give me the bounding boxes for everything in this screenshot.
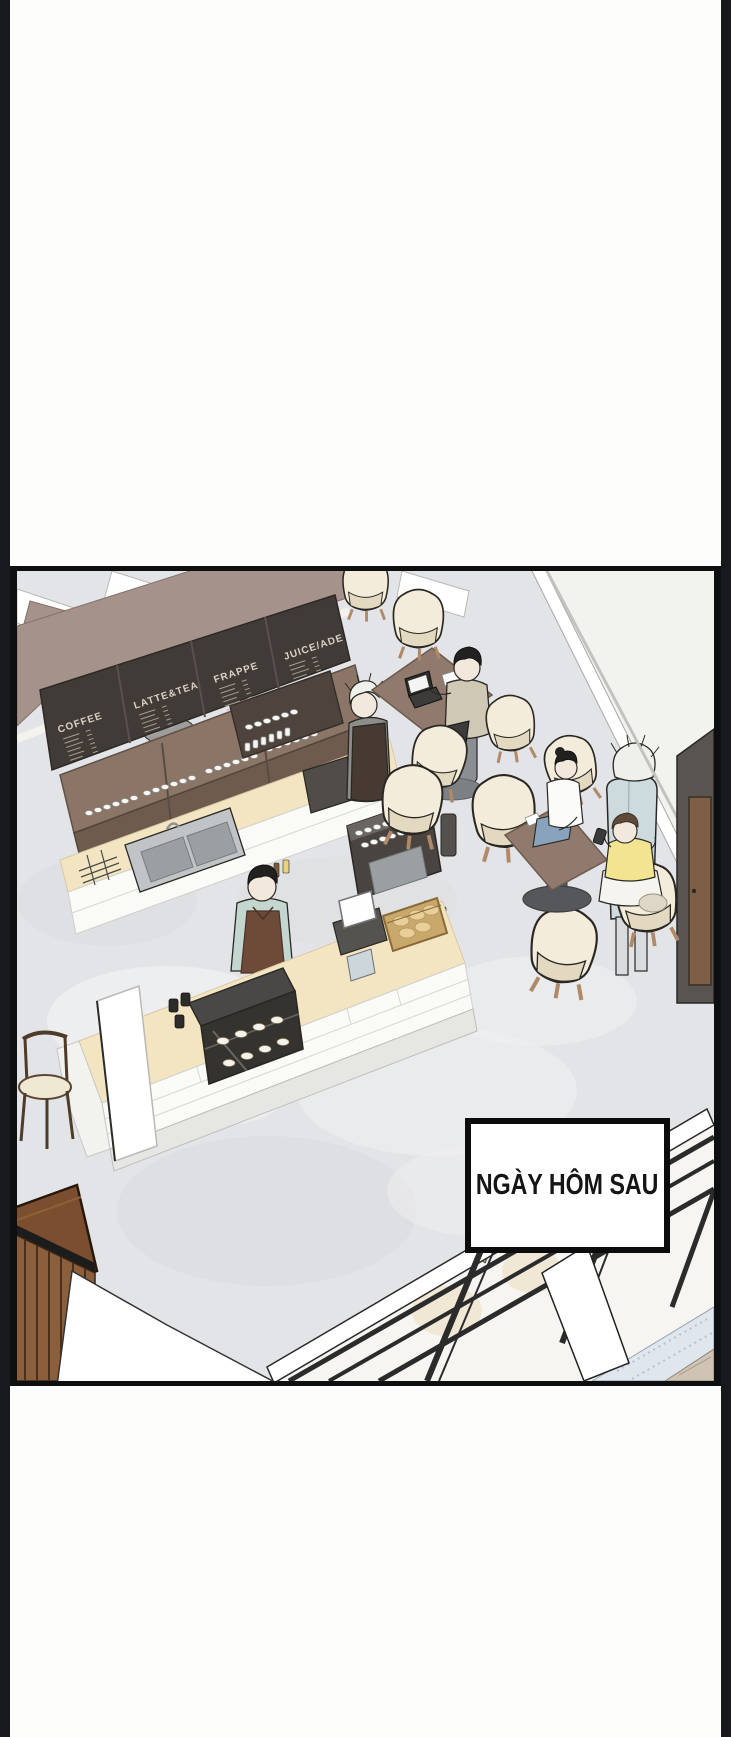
entrance-door	[677, 729, 714, 1003]
cafe-scene-svg: COFFEE LATTE&TEA FRAPPE JUICE/ADE	[17, 571, 714, 1381]
comic-panel: COFFEE LATTE&TEA FRAPPE JUICE/ADE	[10, 566, 721, 1386]
tote-bag	[639, 894, 667, 912]
page-left-border	[0, 0, 10, 1737]
caption-box: NGÀY HÔM SAU	[465, 1118, 670, 1253]
caption-text: NGÀY HÔM SAU	[476, 1169, 659, 1202]
page-right-border	[721, 0, 731, 1737]
cafe-illustration: COFFEE LATTE&TEA FRAPPE JUICE/ADE	[17, 571, 714, 1381]
